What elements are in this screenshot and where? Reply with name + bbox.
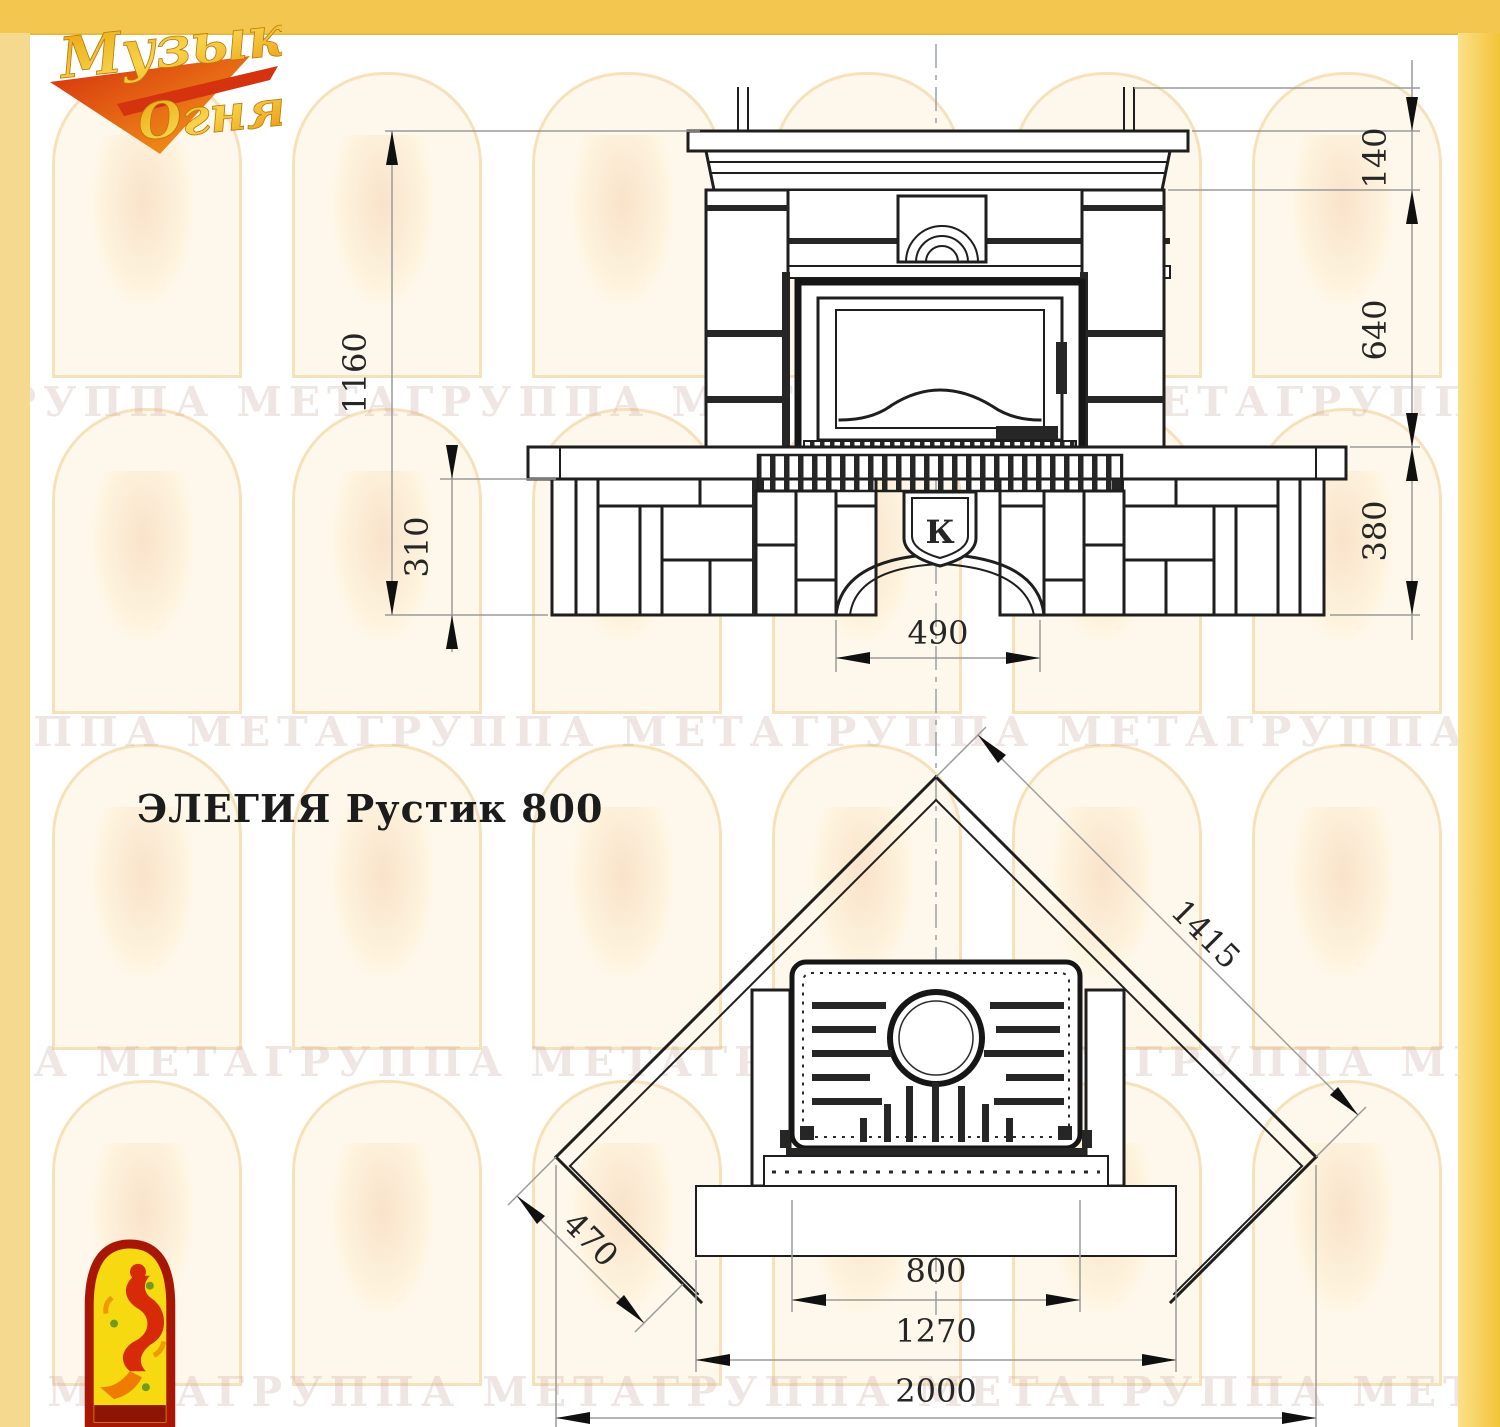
base-right-post (1044, 491, 1124, 615)
dim-insert-width-label: 800 (905, 1252, 966, 1290)
hearth-platform (696, 1156, 1176, 1256)
ash-lip (996, 426, 1058, 439)
door-handle (1056, 342, 1067, 394)
dim-crown-height-label: 140 (1356, 127, 1394, 188)
plan-view: 1415 470 800 1270 (508, 727, 1366, 1427)
firebox-insert-plan (780, 962, 1092, 1156)
emblem-ground (94, 1405, 166, 1422)
maker-badge-letter: К (925, 513, 954, 551)
firebox (798, 282, 1082, 457)
left-gold-band (0, 33, 30, 1427)
firebird-emblem (84, 1238, 176, 1427)
baluster-band (758, 455, 1122, 491)
right-pilaster (1080, 190, 1164, 458)
center-base: К (756, 455, 1124, 615)
dim-overall-width-label: 2000 (895, 1372, 976, 1410)
insert-base-bar (786, 1148, 1086, 1156)
flue-collar (890, 992, 982, 1084)
dim-middle-height-label: 640 (1356, 299, 1394, 360)
drawing-sheet: ГРУППА МЕТАГРУППА МЕТАГРУППА МЕТАГРУППА … (0, 0, 1500, 1427)
dim-hearth-width-label: 1270 (895, 1312, 976, 1350)
right-gold-band (1458, 33, 1500, 1427)
mantel-crown (688, 131, 1188, 190)
left-pilaster (706, 190, 790, 458)
front-elevation: К (336, 60, 1420, 672)
arch-medallion (898, 196, 986, 262)
brand-logo: Музыка Огня (22, 4, 282, 164)
fireplace-technical-drawing: К (0, 0, 1500, 1427)
dim-total-height-label: 1160 (336, 332, 374, 413)
dim-plinth-height-label: 310 (398, 516, 436, 577)
firebird-head (130, 1264, 146, 1280)
base-left-post (756, 491, 836, 615)
dim-bench-height-label: 380 (1356, 500, 1394, 561)
dim-niche-width-label: 490 (907, 614, 968, 652)
model-title: ЭЛЕГИЯ Рустик 800 (137, 786, 603, 831)
